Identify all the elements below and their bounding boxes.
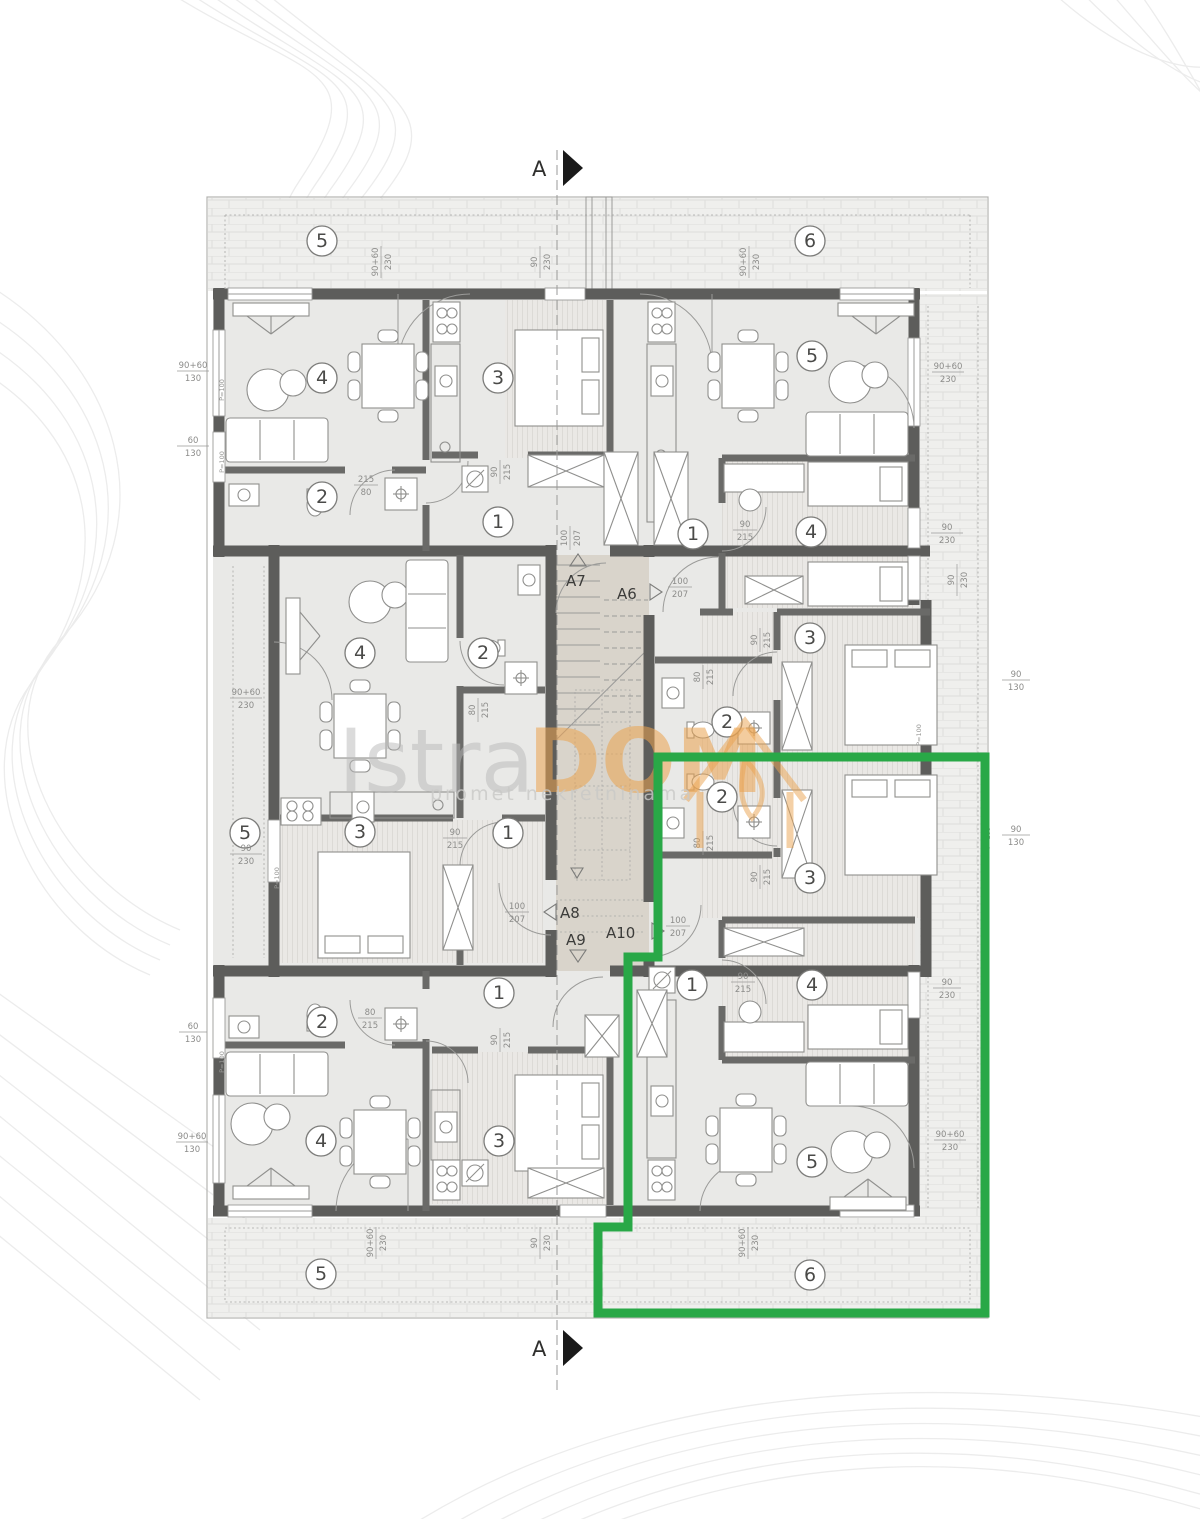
svg-text:90: 90 [942, 523, 953, 533]
svg-text:3: 3 [493, 1130, 505, 1152]
svg-text:130: 130 [185, 449, 201, 459]
svg-text:6: 6 [804, 230, 816, 252]
dimension: 90130 [1002, 670, 1030, 693]
svg-text:P=100: P=100 [218, 451, 226, 473]
svg-text:3: 3 [804, 867, 816, 889]
svg-text:P=100: P=100 [273, 867, 281, 889]
svg-text:230: 230 [384, 254, 394, 270]
svg-text:P=100: P=100 [218, 379, 226, 401]
svg-text:207: 207 [672, 590, 688, 600]
room-number: 1 [677, 970, 707, 1000]
svg-text:80: 80 [365, 1008, 376, 1018]
svg-text:130: 130 [1008, 838, 1024, 848]
svg-text:2: 2 [316, 1011, 328, 1033]
svg-text:6: 6 [804, 1264, 816, 1286]
svg-text:90+60: 90+60 [178, 1132, 207, 1142]
svg-text:90+60: 90+60 [934, 362, 963, 372]
svg-text:215: 215 [362, 1021, 378, 1031]
svg-text:90: 90 [241, 844, 252, 854]
dimension: 90+60130 [177, 361, 209, 384]
svg-text:207: 207 [670, 929, 686, 939]
room-number: 1 [678, 519, 708, 549]
svg-text:230: 230 [238, 701, 254, 711]
room-number: 2 [468, 638, 498, 668]
svg-text:230: 230 [238, 857, 254, 867]
svg-text:215: 215 [503, 464, 513, 480]
section-arrow-icon [563, 1330, 583, 1366]
svg-text:5: 5 [806, 345, 818, 367]
room-number: 5 [797, 341, 827, 371]
svg-text:4: 4 [805, 521, 817, 543]
svg-text:A: A [532, 157, 547, 181]
floor-plan-page: 5 4 3 2 1 6 5 1 4 3 2 5 4 2 3 1 2 3 1 4 … [0, 0, 1200, 1519]
svg-text:1: 1 [686, 974, 698, 996]
svg-text:90+60: 90+60 [232, 688, 261, 698]
room-number: 6 [795, 226, 825, 256]
svg-text:215: 215 [358, 475, 374, 485]
svg-text:215: 215 [706, 669, 716, 685]
svg-text:A: A [532, 1337, 547, 1361]
room-number: 3 [345, 817, 375, 847]
apartment-label-a8: A8 [560, 904, 580, 922]
svg-text:1: 1 [502, 822, 514, 844]
svg-text:230: 230 [940, 375, 956, 385]
svg-text:100: 100 [560, 530, 570, 546]
svg-text:3: 3 [804, 627, 816, 649]
svg-text:100: 100 [672, 577, 688, 587]
svg-text:230: 230 [543, 254, 553, 270]
svg-text:215: 215 [735, 985, 751, 995]
svg-text:130: 130 [184, 1145, 200, 1155]
room-number: 4 [797, 970, 827, 1000]
svg-text:3: 3 [354, 821, 366, 843]
dimension: 60130 [177, 436, 209, 459]
svg-text:1: 1 [492, 511, 504, 533]
svg-text:90+60: 90+60 [738, 1229, 748, 1258]
svg-text:2: 2 [477, 642, 489, 664]
room-number: 4 [306, 1126, 336, 1156]
svg-text:130: 130 [185, 1035, 201, 1045]
svg-text:90: 90 [750, 872, 760, 883]
svg-text:90: 90 [530, 1238, 540, 1249]
svg-text:90: 90 [1011, 670, 1022, 680]
svg-text:1: 1 [687, 523, 699, 545]
svg-text:90+60: 90+60 [179, 361, 208, 371]
svg-text:90+60: 90+60 [371, 248, 381, 277]
svg-text:100: 100 [509, 902, 525, 912]
apartment-label-a6: A6 [617, 585, 637, 603]
svg-text:90: 90 [947, 575, 957, 586]
room-number: 5 [307, 226, 337, 256]
dimension: 60130 [179, 1022, 207, 1045]
svg-text:90+60: 90+60 [936, 1130, 965, 1140]
svg-text:100: 100 [670, 916, 686, 926]
dimension: 90130 [1002, 825, 1030, 848]
room-number: 1 [493, 818, 523, 848]
svg-text:90+60: 90+60 [366, 1229, 376, 1258]
svg-text:90: 90 [942, 978, 953, 988]
room-number: 3 [483, 363, 513, 393]
svg-text:130: 130 [1008, 683, 1024, 693]
svg-text:60: 60 [188, 436, 199, 446]
room-number: 4 [796, 517, 826, 547]
svg-text:90: 90 [450, 828, 461, 838]
room-number: 2 [307, 482, 337, 512]
svg-text:130: 130 [185, 374, 201, 384]
room-number: 2 [307, 1007, 337, 1037]
room-number: 4 [345, 638, 375, 668]
svg-text:230: 230 [752, 254, 762, 270]
svg-text:230: 230 [942, 1143, 958, 1153]
svg-text:90+60: 90+60 [739, 248, 749, 277]
svg-text:90: 90 [490, 1035, 500, 1046]
room-number: 1 [483, 507, 513, 537]
svg-text:4: 4 [316, 367, 328, 389]
svg-text:3: 3 [492, 367, 504, 389]
svg-text:4: 4 [315, 1130, 327, 1152]
room-number: 1 [484, 978, 514, 1008]
apartment-label-a9: A9 [566, 931, 586, 949]
svg-text:90: 90 [490, 467, 500, 478]
svg-text:1: 1 [493, 982, 505, 1004]
svg-text:230: 230 [939, 991, 955, 1001]
svg-text:P=100: P=100 [915, 724, 923, 746]
svg-text:60: 60 [188, 1022, 199, 1032]
svg-text:207: 207 [573, 530, 583, 546]
svg-text:215: 215 [737, 533, 753, 543]
svg-text:4: 4 [354, 642, 366, 664]
svg-text:5: 5 [806, 1151, 818, 1173]
svg-text:80: 80 [693, 672, 703, 683]
svg-text:4: 4 [806, 974, 818, 996]
floor-plan-drawing: 5 4 3 2 1 6 5 1 4 3 2 5 4 2 3 1 2 3 1 4 … [0, 0, 1200, 1519]
svg-text:230: 230 [379, 1235, 389, 1251]
svg-text:207: 207 [509, 915, 525, 925]
svg-text:215: 215 [763, 869, 773, 885]
svg-text:230: 230 [543, 1235, 553, 1251]
apartment-label-a7: A7 [566, 572, 586, 590]
svg-text:230: 230 [939, 536, 955, 546]
room-number: 6 [795, 1260, 825, 1290]
svg-text:P=100: P=100 [218, 1051, 226, 1073]
svg-text:90: 90 [740, 520, 751, 530]
section-arrow-icon [563, 150, 583, 186]
svg-text:230: 230 [960, 572, 970, 588]
apartment-label-a10: A10 [606, 924, 635, 942]
room-number: 5 [797, 1147, 827, 1177]
svg-text:5: 5 [316, 230, 328, 252]
room-number: 5 [306, 1259, 336, 1289]
svg-text:90: 90 [530, 257, 540, 268]
svg-text:215: 215 [763, 632, 773, 648]
room-number: 3 [795, 623, 825, 653]
svg-text:90: 90 [1011, 825, 1022, 835]
svg-text:230: 230 [751, 1235, 761, 1251]
svg-text:90: 90 [738, 972, 749, 982]
svg-text:90: 90 [750, 635, 760, 646]
svg-text:5: 5 [239, 822, 251, 844]
svg-text:215: 215 [503, 1032, 513, 1048]
svg-text:215: 215 [706, 835, 716, 851]
svg-text:215: 215 [447, 841, 463, 851]
room-number: 3 [795, 863, 825, 893]
svg-text:80: 80 [361, 488, 372, 498]
dimension: 90+60130 [176, 1132, 208, 1155]
room-number: 4 [307, 363, 337, 393]
svg-text:2: 2 [316, 486, 328, 508]
room-number: 3 [484, 1126, 514, 1156]
svg-text:5: 5 [315, 1263, 327, 1285]
